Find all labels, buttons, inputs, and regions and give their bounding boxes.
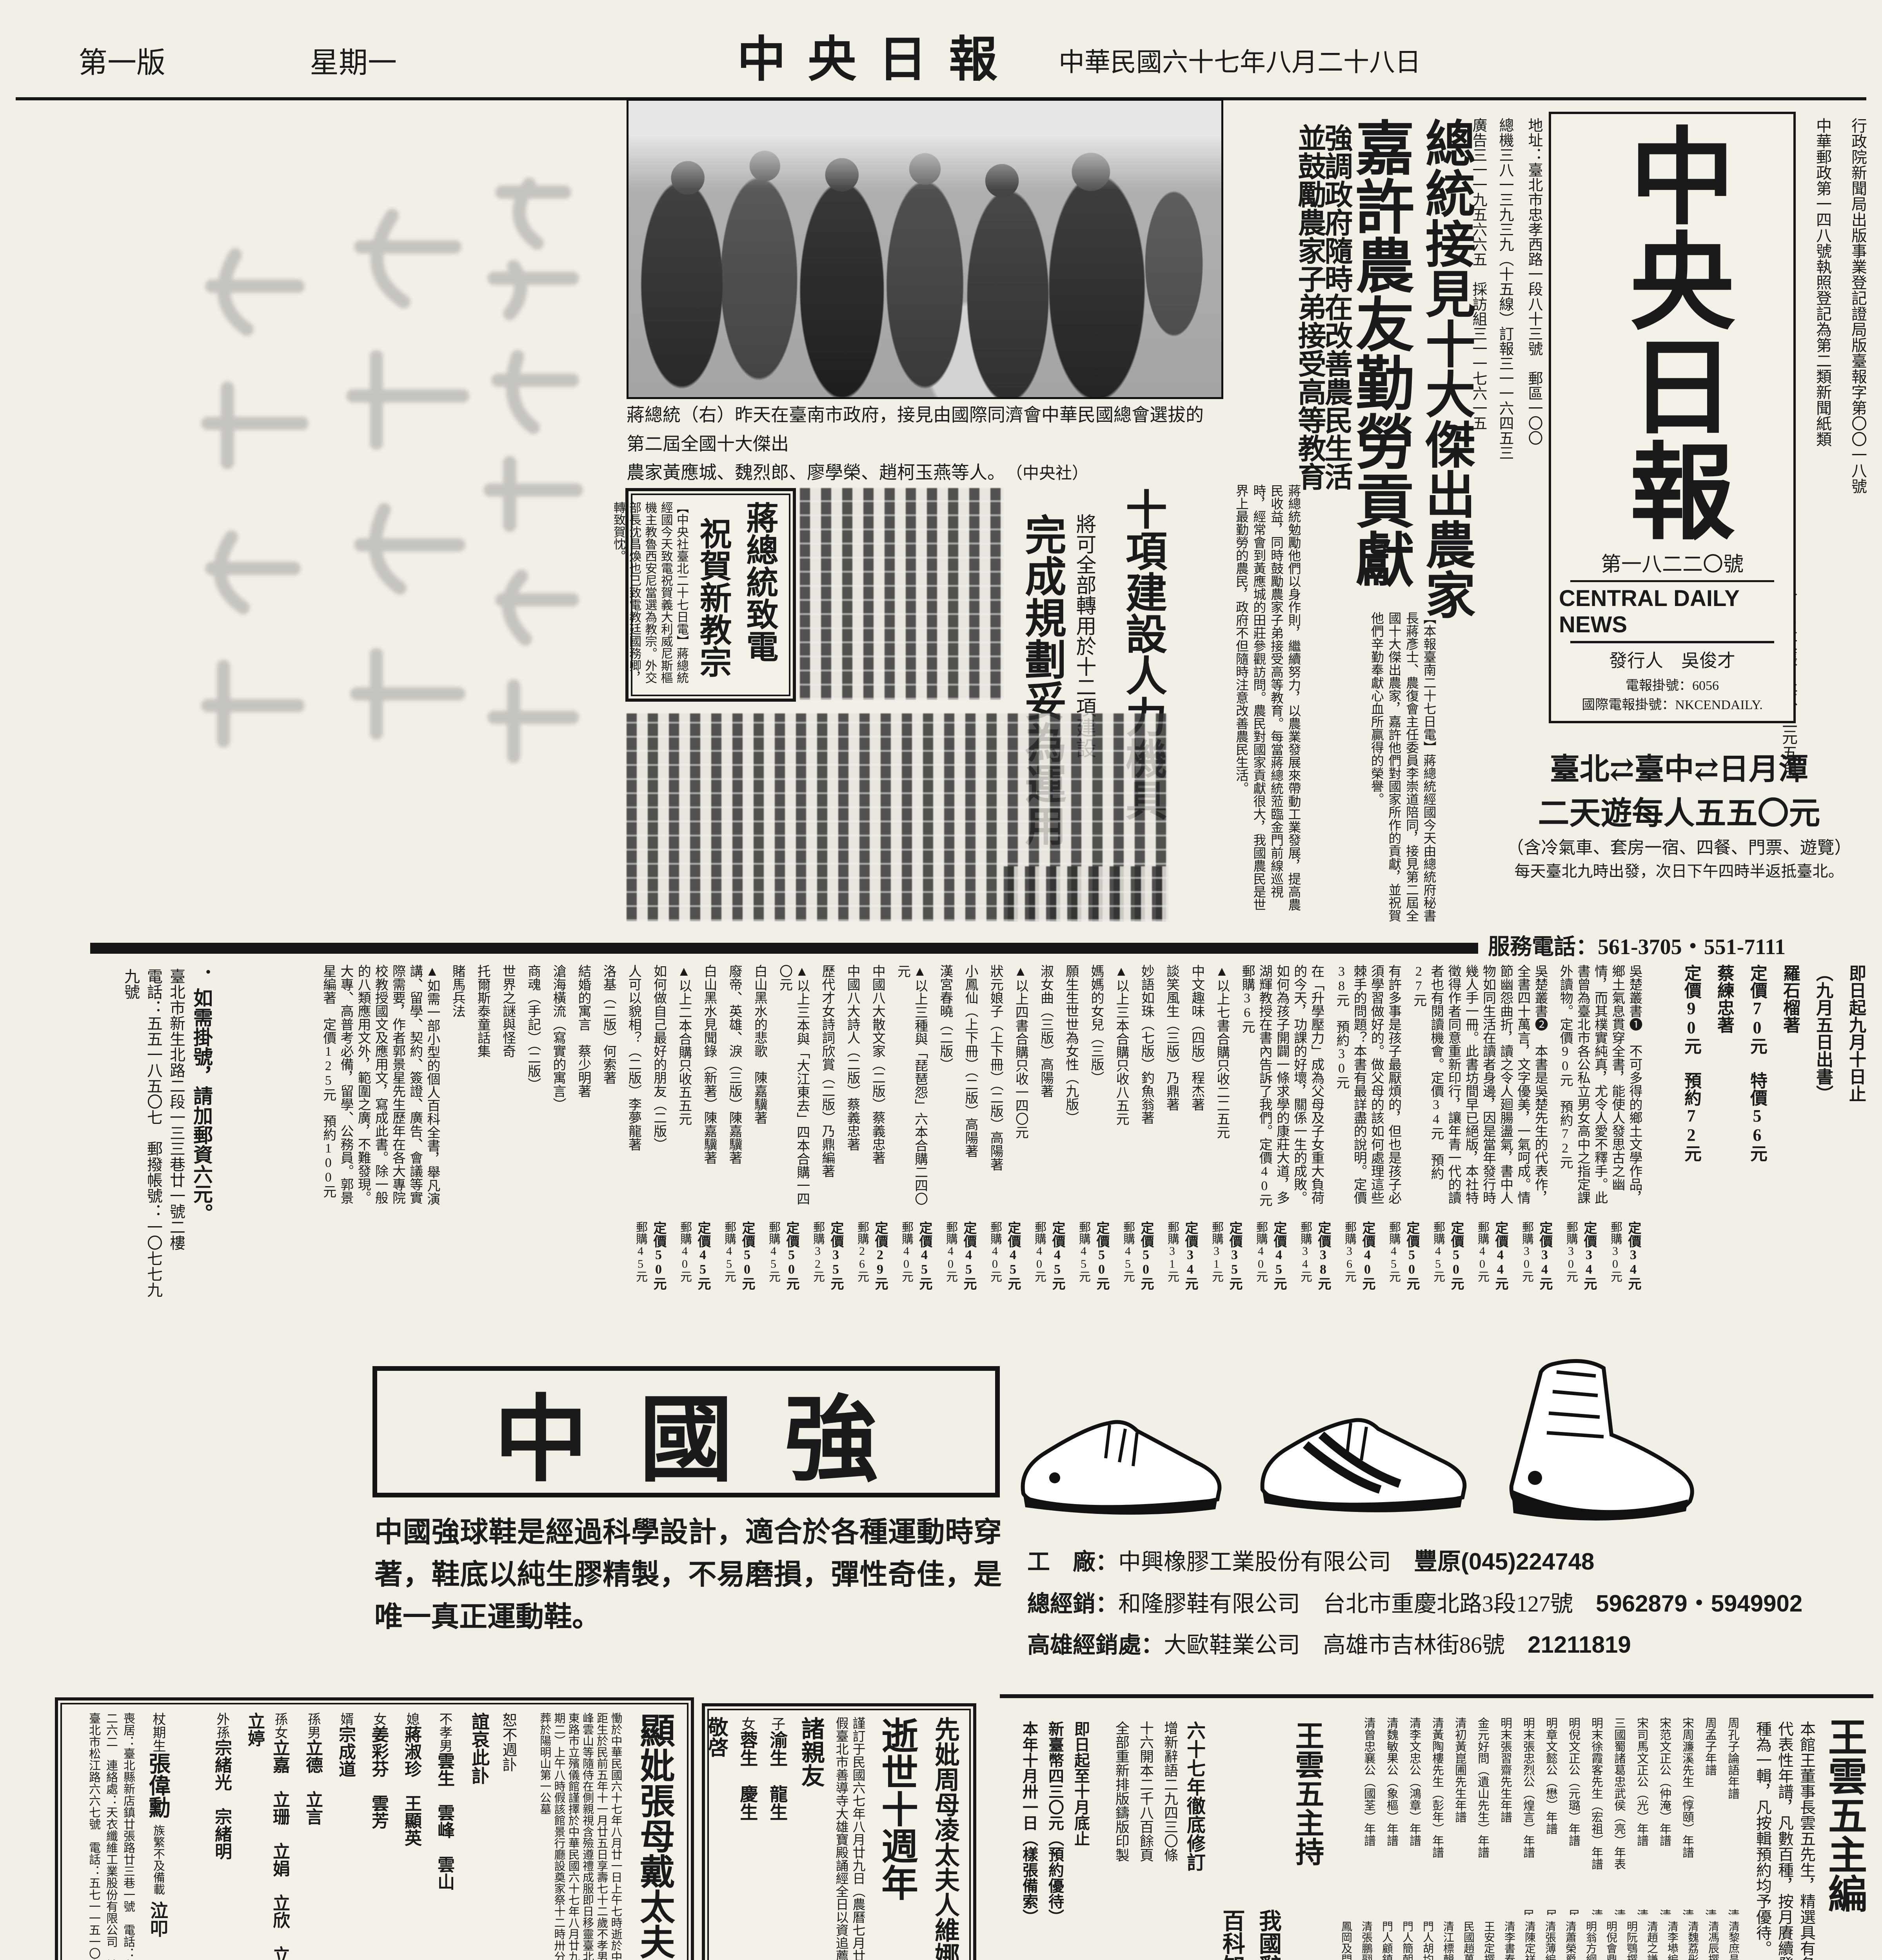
book-ad-promo-columns: 即日起九月十日止（九月五日出書）羅石榴著定價70元 特價56元蔡練忠著定價90元… — [1659, 964, 1872, 1305]
factory-phone: 豐原(045)224748 — [1414, 1548, 1594, 1575]
mail-price: 郵購31元 — [1163, 1221, 1181, 1299]
section-separator-bar — [90, 943, 1478, 954]
memorial-zhou-anniversary: 逝世十週年 — [870, 1717, 923, 1960]
dictionary-price-line: 即日起至十月底止 — [1069, 1721, 1092, 1960]
mail-price: 郵購31元 — [1208, 1221, 1225, 1299]
list-price: 定價45元 — [959, 1221, 978, 1299]
list-price: 定價34元 — [1535, 1221, 1554, 1299]
distributor-name: 和隆膠鞋有限公司 — [1118, 1591, 1300, 1617]
list-price: 定價50元 — [738, 1221, 757, 1299]
pope-box-title-2: 祝賀新教宗 — [689, 517, 736, 697]
kaohsiung-label: 高雄經銷處： — [1027, 1632, 1164, 1658]
obituary-zhang-details: 慟於中華民國六十七年八月廿一日上午七時逝於中心診所距生於民前五年十一月廿五日享壽… — [525, 1712, 623, 1960]
book-ad-column-text: 吳楚叢書❷ 本書是吳楚先生的代表作，全書四十萬言，文字優美，一氣呵成。情節幽怨曲… — [1411, 964, 1547, 1204]
book-ad-column: ▲以上三種與「琵琶怨」六本合購二四〇元 — [894, 964, 928, 1207]
family-group: 婿宗成道 — [333, 1712, 358, 1960]
book-ad-column-text: 賭馬兵法 — [450, 964, 465, 1018]
band-rule — [1000, 1694, 1873, 1698]
yearbook-title: 清黃陶樓先生（彭年）年譜 — [1428, 1717, 1445, 1909]
yearbook-title-columns: 周孔子論語年譜周孟子年譜宋周濂溪先生（惇頤）年譜宋范文正公（仲淹）年譜宋司馬文正… — [1333, 1717, 1741, 1915]
list-price: 定價50元 — [649, 1221, 668, 1299]
shoe-ad-body: 中國強球鞋是經過科學設計，適合於各種運動時穿著，鞋底以純生膠精製，不易磨損，彈性… — [374, 1511, 1002, 1695]
book-ad-column: 如何做自己最好的朋友（二版） — [650, 964, 667, 1207]
book-ad-column-text: 中國八大詩人（二版）蔡義忠著 — [845, 964, 859, 1151]
yearbook-title: 周孟子年譜 — [1701, 1717, 1718, 1909]
book-ad-column: ▲以上二本合購只收五五元 — [675, 964, 692, 1207]
paper-name-header: 中央日報 — [737, 20, 1035, 86]
memorial-zhou-body: 謹訂于民國六七年八月廿九日（農曆七月廿六日）假臺北市善導寺大雄寶殿誦經全日以資追… — [832, 1717, 866, 1960]
tour-schedule: 每天臺北九時出發，次日下午四時半返抵臺北。 — [1488, 858, 1870, 881]
photo-credit: （中央社） — [1014, 465, 1088, 483]
mourning-word: 泣叩 — [148, 1901, 168, 1937]
distributor-address: 台北市重慶北路3段127號 — [1323, 1591, 1573, 1617]
mail-price: 郵購40元 — [1252, 1221, 1269, 1299]
price-pair: 定價50元 郵購45元 — [1075, 1221, 1111, 1299]
yearbook-compiler: 清江標輯 — [1440, 1921, 1455, 1960]
yearbook-compiler: 王安定撰 — [1481, 1921, 1496, 1960]
dictionary-revision-note: 六十七年徹底修訂 — [1180, 1721, 1208, 1960]
lead-deck-1: 強調政府隨時在改善農民生活 — [1331, 123, 1357, 594]
body-text-columns — [800, 488, 1004, 700]
yearbook-compiler: 清張鵬翮輯 — [1358, 1921, 1374, 1960]
book-ad-column-text: 世界之謎與怪奇 — [500, 964, 515, 1058]
mail-price: 郵購45元 — [1075, 1221, 1092, 1299]
book-ad-column: 媽媽的女兒（三版） — [1087, 964, 1104, 1207]
weekday: 星期一 — [310, 39, 420, 82]
mail-price: 郵購26元 — [853, 1221, 870, 1299]
kaohsiung-address: 高雄市吉林街86號 — [1323, 1632, 1505, 1658]
kaohsiung-name: 大歐鞋業公司 — [1164, 1632, 1300, 1658]
book-ad-column: 結婚的寓言 蔡少明著 — [574, 964, 592, 1207]
family-names: 立德 立言 — [303, 1739, 322, 1825]
lead-dateline: 【本報臺南二十七日電】 — [1421, 612, 1435, 754]
book-ad-column-text: 中文趣味（四版）程杰著 — [1190, 964, 1204, 1111]
book-ad-column: 談笑風生（三版）乃鼎著 — [1163, 964, 1180, 1207]
yearbook-title: 民國梁燕孫先生（士詒）年譜 — [1519, 1909, 1536, 1915]
family-note: 族繁不及備載 — [151, 1824, 164, 1895]
book-ad-column: 賭馬兵法 — [449, 964, 466, 1207]
book-ad-column: 中文趣味（四版）程杰著 — [1188, 964, 1205, 1207]
book-ad-column: 歷代才女詩詞欣賞（二版）乃鼎編著 — [818, 964, 836, 1207]
mail-price: 郵購34元 — [1296, 1221, 1313, 1299]
pope-box-title-1: 蔣總統致電 — [736, 501, 783, 682]
price-pair: 定價45元 郵購40元 — [897, 1221, 934, 1299]
price-pair: 定價50元 郵購45元 — [1385, 1221, 1421, 1299]
distributor-phone: 5962879・5949902 — [1596, 1590, 1802, 1617]
obituary-zhang-family: 不孝男雲生 雲峰 雲山 媳蔣淑珍 王顯英 女姜彩芬 雲芳 婿宗成道 孫男立德 立… — [179, 1712, 461, 1960]
lead-headline-second: 嘉許農友勤勞貢獻 — [1357, 118, 1422, 682]
book-ad-price-row: 定價34元 郵購30元 定價34元 郵購30元 定價34元 郵購30元 定價44… — [220, 1221, 1647, 1305]
book-ad-column: 漢宮春曉（二版） — [936, 964, 954, 1207]
list-price: 定價38元 — [1313, 1221, 1333, 1299]
family-group: 孫男立德 立言 — [300, 1712, 325, 1960]
book-ad-contact: ．如需掛號，請加郵資六元。 臺北市新生北路二段一三三巷廿一號二樓 電話：五五一八… — [94, 968, 216, 1305]
pope-box-body: 【中央社臺北二十七日電】蔣總統經國今天致電祝賀義大利威尼斯樞機主教魯西安尼當選為… — [610, 501, 689, 690]
price-pair: 定價45元 郵購40元 — [942, 1221, 978, 1299]
yearbook-compiler: 清李書春著 — [1501, 1921, 1517, 1960]
book-ad-column-text: 漢宮春曉（二版） — [938, 964, 952, 1071]
sneaker-illustration-striped — [1251, 1388, 1470, 1525]
book-ad-column-text: 淑女曲（三版）高陽著 — [1039, 964, 1053, 1098]
dictionary-slogan-2: 百科知識之泉源 — [1213, 1909, 1248, 1960]
book-ad-column: 中國八大詩人（二版）蔡義忠著 — [843, 964, 861, 1207]
yearbook-compiler: 清馮辰撰 — [1705, 1921, 1720, 1960]
dictionary-ad: 六十七年徹底修訂 增新辭語二九四三〇條十六開本二千八百餘頁全部重新排版鑄版印製仍… — [1098, 1721, 1208, 1960]
service-phone: 服務電話：561-3705・551-7111 — [1488, 929, 1870, 964]
yearbook-compiler: 明翁方綱編 — [1582, 1921, 1598, 1960]
publisher: 發行人 吳俊才 — [1609, 646, 1735, 672]
yearbook-title: 清曾忠襄公（國荃）年譜 — [1360, 1717, 1377, 1909]
family-role: 不孝男 — [437, 1712, 452, 1752]
promo-line: （九月五日出書） — [1810, 964, 1835, 1298]
dictionary-price-line: 本年十月卅一日（樣張備索） — [1017, 1721, 1040, 1960]
mail-price: 郵購30元 — [1518, 1221, 1535, 1299]
dictionary-price-lines: 即日起至十月底止新臺幣四三〇元（預約優待）本年十月卅一日（樣張備索）臺北市重慶南… — [1004, 1721, 1092, 1960]
yearbook-compiler: 鳳岡及門弟子謹編 — [1338, 1921, 1353, 1960]
list-price: 定價34元 — [1579, 1221, 1599, 1299]
list-price: 定價50元 — [1092, 1221, 1111, 1299]
obituary-zhang-box: 顯妣張母戴太夫人 慟於中華民國六十七年八月廿一日上午七時逝於中心診所距生於民前五… — [55, 1697, 694, 1960]
yearbook-title: 明倪文正公（元璐）年譜 — [1564, 1717, 1582, 1909]
yearbook-title: 清李恕谷先生年譜 — [1610, 1909, 1627, 1915]
family-names: 蔣淑珍 王顯英 — [402, 1726, 421, 1846]
book-ad-column-text: ▲如需一部小型的個人百科全書，舉凡演講、留學、契約、簽證、廣告、會議等實際需要，… — [321, 964, 440, 1205]
book-ad-column-text: 結婚的寓言 蔡少明著 — [576, 964, 590, 1098]
intl-cable: 國際電報掛號：NKCENDAILY. — [1582, 694, 1763, 713]
paper-title-vertical: 中央日報 — [1617, 122, 1727, 544]
family-group: 女姜彩芬 雲芳 — [366, 1712, 391, 1960]
memorial-zhou-box: 先妣周母凌太夫人維娜 逝世十週年 謹訂于民國六七年八月廿九日（農曆七月廿六日）假… — [702, 1703, 976, 1960]
mail-price: 郵購45元 — [1119, 1221, 1136, 1299]
memorial-zhou-title: 先妣周母凌太夫人維娜 — [927, 1717, 963, 1960]
price-pair: 定價34元 郵購30元 — [1562, 1221, 1599, 1299]
book-ad-column-text: 願生生世世為女性（九版） — [1064, 964, 1078, 1124]
list-price: 定價35元 — [826, 1221, 845, 1299]
shoe-brand-name: 中國強 — [443, 1364, 929, 1500]
memorial-zhou-daughters: 女蓉生 慶生 — [734, 1717, 760, 1960]
dictionary-detail-line: 增新辭語二九四三〇條 — [1160, 1721, 1180, 1960]
yearbook-compiler: 清陳定祥撰 — [1521, 1921, 1537, 1960]
book-ad-column-text: 小鳳仙（上下冊）（二版）高陽著 — [963, 964, 977, 1158]
yearbook-title: 明章文懿公（懋）年譜 — [1542, 1717, 1559, 1909]
list-price: 定價50元 — [1446, 1221, 1466, 1299]
book-ad-column: 淑女曲（三版）高陽著 — [1037, 964, 1054, 1207]
mail-price: 郵購30元 — [1562, 1221, 1579, 1299]
book-ad-column: 白山黑水見聞錄（新著）陳嘉驥著 — [700, 964, 718, 1207]
list-price: 定價45元 — [1048, 1221, 1067, 1299]
yearbook-title: 明末張忠烈公（煌言）年譜 — [1519, 1717, 1536, 1909]
yearbook-title: 明末徐霞客先生（宏祖）年譜 — [1587, 1717, 1604, 1909]
book-ad-column-text: ▲以上三本與「大江東去」四本合購一四〇元 — [778, 964, 809, 1205]
promo-line: 蔡練忠著 — [1711, 964, 1737, 1298]
factory-label: 工 廠： — [1027, 1549, 1118, 1575]
price-pair: 定價34元 郵購31元 — [1163, 1221, 1200, 1299]
family-group: 孫女立嘉 立珊 立娟 立欣 立莉 立婷 — [242, 1712, 292, 1960]
yearbook-title: 周孔子論語年譜 — [1724, 1717, 1741, 1909]
book-ad-column-text: ▲以上七書合購只收二二五元 — [1215, 964, 1229, 1139]
book-ad-column: 洛基（二版）何索著 — [599, 964, 617, 1207]
book-ad-column: 白山黑水的悲歌 陳嘉驥著 — [750, 964, 768, 1207]
book-ad-phone-postal: 電話：五五一八五〇七 郵撥帳號：一〇七七九九號 — [119, 968, 165, 1298]
book-ad-column-text: 白山黑水見聞錄（新著）陳嘉驥著 — [702, 964, 716, 1164]
yearbook-compiler: 明阮鶚撰 — [1623, 1921, 1639, 1960]
yearbook-compiler: 清李塨編 — [1664, 1921, 1680, 1960]
book-ad-column-text: 吳楚叢書❶ 不可多得的鄉土文學作品，鄉土氣息貫穿全書，能使人發思古之幽情，而其樸… — [1558, 964, 1642, 1204]
book-ad-column-text: 在「升學壓力」成為父母及子女重大負荷的今天，功課的好壞，關係一生的成敗。如何為孩… — [1240, 964, 1324, 1217]
dictionary-detail-line: 全部重新排版鑄版印製 — [1111, 1721, 1132, 1960]
book-ad-column-text: 如何做自己最好的朋友（二版） — [652, 964, 666, 1151]
list-price: 定價34元 — [1181, 1221, 1200, 1299]
list-price: 定價50元 — [782, 1221, 801, 1299]
price-pair: 定價50元 郵購45元 — [1429, 1221, 1466, 1299]
yearbook-title: 宋司馬文正公（光）年譜 — [1633, 1717, 1650, 1909]
yearbook-title: 金元好問（遺山先生）年譜 — [1473, 1717, 1491, 1909]
book-ad-column: 滄海橫流（寫實的寓言） — [549, 964, 567, 1207]
book-ad-column: ▲以上三本與「大江東去」四本合購一四〇元 — [776, 964, 810, 1207]
yearbook-compiler: 清趙之謙編 — [1644, 1921, 1659, 1960]
promo-line: 定價90元 預約72元 — [1679, 964, 1704, 1298]
family-group: 不孝男雲生 雲峰 雲山 — [432, 1712, 457, 1960]
book-ad-column: 世界之謎與怪奇 — [499, 964, 516, 1207]
book-ad-column-text: ▲以上三本合購只收八五元 — [1114, 964, 1128, 1125]
family-role: 孫男 — [305, 1712, 320, 1739]
memorial-zhou-addressee: 諸親友 — [794, 1717, 828, 1960]
price-pair: 定價38元 郵購34元 — [1296, 1221, 1333, 1299]
book-ad-column-text: 滄海橫流（寫實的寓言） — [551, 964, 565, 1111]
price-pair: 定價45元 郵購40元 — [676, 1221, 712, 1299]
family-names: 立嘉 立珊 立娟 立欣 立莉 立婷 — [245, 1712, 289, 1960]
list-price: 定價44元 — [1491, 1221, 1510, 1299]
photo-caption-line-2: 農家黃應城、魏烈郎、廖學榮、趙柯玉燕等人。 — [627, 463, 996, 483]
yearbook-compiler: 清魏荔彤編 — [1684, 1921, 1700, 1960]
yearbook-title: 清沈文忠公（兆霖）自訂年譜 — [1701, 1909, 1718, 1915]
mail-price: 郵購45元 — [1429, 1221, 1446, 1299]
book-ad-column-text: 歷代才女詩詞欣賞（二版）乃鼎編著 — [820, 964, 834, 1178]
family-names: 宗成道 — [336, 1726, 355, 1777]
divider — [1570, 580, 1774, 583]
price-pair: 定價45元 郵購40元 — [1030, 1221, 1067, 1299]
ink-bleed-through-calligraphy — [118, 137, 604, 906]
mail-price: 郵購40元 — [676, 1221, 693, 1299]
daughters-label: 女 — [739, 1717, 755, 1731]
lead-headline-main: 總統接見十大傑出農家 — [1423, 118, 1482, 678]
yearbook-title: 民國周玉山先生（馥）自訂年譜 — [1564, 1909, 1582, 1915]
book-ad-column-text: 廢帝、英雄、淚（三版）陳嘉驥著 — [727, 964, 741, 1164]
price-pair: 定價50元 郵購45元 — [720, 1221, 757, 1299]
yearbook-title: 清張文襄公（之洞）年譜 — [1655, 1909, 1673, 1915]
mail-price: 郵購36元 — [1341, 1221, 1358, 1299]
book-ad-column: ▲以上三本合購只收八五元 — [1112, 964, 1130, 1207]
yearbook-compiler: 門人胡均重編 — [1419, 1921, 1435, 1960]
cable-number: 電報掛號：6056 — [1626, 675, 1719, 694]
yearbook-compiler: 清張薄編訂 — [1542, 1921, 1557, 1960]
list-price: 定價45元 — [693, 1221, 712, 1299]
book-ad-column-text: ▲以上四書合購只收一四〇元 — [1013, 964, 1028, 1139]
kaohsiung-phone: 21211819 — [1528, 1632, 1631, 1658]
sneaker-illustration-hightop — [1494, 1348, 1698, 1533]
price-pair: 定價34元 郵購30元 — [1606, 1221, 1643, 1299]
contact-office: 連絡處：天衣纖維工業股份有限公司 — [104, 1759, 117, 1947]
wang-ad-host-title: 王雲五主持 — [1287, 1721, 1328, 1893]
book-ad-column-text: 狀元娘子（上下冊）（二版）高陽著 — [988, 964, 1003, 1171]
sons-names: 渝生 龍生 — [767, 1731, 787, 1821]
newspaper-front-page: { "page":{"paper":"中央日報","date":"中華民國六十七… — [0, 0, 1882, 1960]
family-names: 宗緒光 宗緒明 — [212, 1739, 231, 1860]
dictionary-detail-lines: 增新辭語二九四三〇條十六開本二千八百餘頁全部重新排版鑄版印製仍按五年以前售價大康… — [1098, 1721, 1180, 1960]
family-role: 外孫 — [214, 1712, 229, 1739]
book-ad-column: 吳楚叢書❷ 本書是吳楚先生的代表作，全書四十萬言，文字優美，一氣呵成。情節幽怨曲… — [1410, 964, 1549, 1207]
mail-price: 郵購40元 — [986, 1221, 1003, 1299]
list-price: 定價35元 — [1225, 1221, 1244, 1299]
factory-name: 中興橡膠工業股份有限公司 — [1118, 1549, 1391, 1575]
family-role: 婿 — [338, 1712, 353, 1726]
yearbook-compiler-columns: 清黎庶昌編清馮辰撰清魏荔彤編清李塨編清趙之謙編明阮鶚撰明倪會鼎撰明翁方綱編清蕭榮… — [1333, 1921, 1741, 1960]
book-ad-registered-note: ．如需掛號，請加郵資六元。 — [187, 968, 216, 1298]
family-role: 女 — [371, 1712, 386, 1726]
book-ad-column: 吳楚叢書❶ 不可多得的鄉土文學作品，鄉土氣息貫穿全書，能使人發思古之幽情，而其樸… — [1556, 964, 1643, 1207]
book-ad-column: 願生生世世為女性（九版） — [1062, 964, 1079, 1207]
book-ad-column-text: 中國八大散文家（二版）蔡義忠著 — [870, 964, 885, 1164]
book-ad-column: 商魂（手記）（二版） — [524, 964, 541, 1207]
yearbook-title: 清初黃崑圃先生年譜 — [1451, 1717, 1468, 1909]
yearbook-title: 清李文忠公（鴻章）年譜 — [1405, 1717, 1422, 1909]
tour-includes: （含冷氣車、套房一宿、四餐、門票、遊覽） — [1488, 833, 1870, 858]
page-number: 第一版 — [78, 39, 204, 82]
chief-mourner-name: 張偉勳 — [145, 1752, 170, 1818]
english-name: CENTRAL DAILY NEWS — [1559, 585, 1786, 638]
yearbook-title: 清曾文正公（國藩）年譜 — [1633, 1909, 1650, 1915]
book-ad-column: 在「升學壓力」成為父母及子女重大負荷的今天，功課的好壞，關係一生的成敗。如何為孩… — [1238, 964, 1325, 1207]
tour-price: 二天遊每人五五〇元 — [1488, 788, 1870, 833]
yearbook-compiler: 民國趙萬里撰 — [1460, 1921, 1476, 1960]
book-ad-column: 托爾斯泰童話集 — [474, 964, 491, 1207]
yearbook-title: 宋周濂溪先生（惇頤）年譜 — [1678, 1717, 1695, 1909]
list-price: 定價40元 — [1358, 1221, 1377, 1299]
body-text-columns — [1004, 866, 1168, 921]
tour-route: 臺北⇄臺中⇄日月潭 — [1488, 745, 1870, 788]
yearbook-title: 宋范文正公（仲淹）年譜 — [1655, 1717, 1673, 1909]
sun-moon-lake-tour-ad: 臺北⇄臺中⇄日月潭 二天遊每人五五〇元 （含冷氣車、套房一宿、四餐、門票、遊覽）… — [1488, 745, 1870, 917]
wang-ad-intro: 本館王董事長雲五先生，精選具有各方面代表性年譜，凡數百種，按月賡續發行十種為一輯… — [1749, 1721, 1817, 1960]
sneaker-illustration-low — [1008, 1396, 1227, 1525]
mail-price: 郵購45元 — [765, 1221, 782, 1299]
book-ad-column: 人可以貌相？（二版）李夢龍著 — [625, 964, 642, 1207]
office-address: 地址：臺北市忠孝西路一段八十三號 郵區一〇〇 — [1517, 118, 1545, 706]
yearbook-compiler: 清黎庶昌編 — [1725, 1921, 1741, 1960]
obituary-zhang-contacts: 喪居：臺北縣新店鎮廿張路廿三巷一號 電話：九一一二六二 連絡處：天衣纖維工業股份… — [70, 1712, 136, 1960]
photo-caption-line-1: 蔣總統（右）昨天在臺南市政府，接見由國際同濟會中華民國總會選拔的第二屆全國十大傑… — [627, 401, 1219, 458]
news-photo-president-meeting-farmers — [627, 99, 1223, 399]
list-price: 定價45元 — [1003, 1221, 1023, 1299]
list-price: 定價34元 — [1624, 1221, 1643, 1299]
yearbook-title: 三國蜀諸葛忠武侯（亮）年表 — [1610, 1717, 1627, 1909]
yearbook-title: 明末張習齋先生年譜 — [1496, 1717, 1513, 1909]
book-ad-column-text: 托爾斯泰童話集 — [475, 964, 490, 1058]
book-ad-column-text: 談笑風生（三版）乃鼎著 — [1164, 964, 1179, 1111]
shoe-ad-company-info: 工 廠：中興橡膠工業股份有限公司 豐原(045)224748 總經銷：和隆膠鞋有… — [1027, 1543, 1874, 1691]
lead-article-body: 【本報臺南二十七日電】蔣總統經國今天由總統府秘書長蔣彥士、農復會主任委員李崇道陪… — [1308, 612, 1437, 925]
yearbook-compiler: 清蕭榮爵增補 — [1562, 1921, 1578, 1960]
book-ad-column-text: 洛基（二版）何索著 — [601, 964, 616, 1084]
mail-price: 郵購45元 — [1385, 1221, 1402, 1299]
list-price: 定價50元 — [1136, 1221, 1155, 1299]
masthead-box: 中央日報 第一八二二〇號 CENTRAL DAILY NEWS 發行人 吳俊才 … — [1549, 112, 1796, 723]
book-ad-column: ▲以上七書合購只收二二五元 — [1213, 964, 1230, 1207]
lead-deck-2: 並鼓勵農家子弟接受高等教育 — [1305, 123, 1330, 594]
yearbook-title: 清魏敏果公（象樞）年譜 — [1382, 1717, 1400, 1909]
list-price: 定價45元 — [1269, 1221, 1288, 1299]
book-ad-column-text: 有許多事是孩子最厭煩的，但也是孩子必須學習做好的。做父母的該如何處理這些棘手的問… — [1334, 964, 1401, 1204]
price-pair: 定價35元 郵購32元 — [809, 1221, 845, 1299]
family-role: 孫女 — [272, 1712, 287, 1739]
book-ad-column-text: 妙語如珠（七版）釣魚翁著 — [1139, 964, 1154, 1124]
obituary-zhang-title: 顯妣張母戴太夫人 — [628, 1712, 679, 1960]
book-ad-column-text: 人可以貌相？（二版）李夢龍著 — [626, 964, 641, 1151]
obituary-zhang-pardon: 恕不週訃 — [498, 1712, 519, 1960]
dictionary-slogan-1: 我國辭書之權威 — [1250, 1909, 1284, 1960]
family-group: 外孫宗緒光 宗緒明 — [209, 1712, 234, 1960]
book-ad-address: 臺北市新生北路二段一三三巷廿一號二樓 — [165, 968, 187, 1298]
yearbook-compiler: 門人顧鎮編輯 — [1379, 1921, 1394, 1960]
obituary-zhang-chief: 杖期生張偉勳 族繁不及備載 泣叩 — [142, 1712, 174, 1960]
mail-price: 郵購40元 — [942, 1221, 959, 1299]
book-ad-column-text: 白山黑水的悲歌 陳嘉驥著 — [752, 964, 767, 1124]
price-pair: 定價50元 郵購45元 — [632, 1221, 668, 1299]
book-ad-column-text: 媽媽的女兒（三版） — [1089, 964, 1103, 1084]
yearbook-compiler: 明倪會鼎撰 — [1603, 1921, 1619, 1960]
distributor-label: 總經銷： — [1027, 1591, 1118, 1617]
book-ad-column-text: 商魂（手記）（二版） — [526, 964, 540, 1091]
book-ad-column: 廢帝、英雄、淚（三版）陳嘉驥著 — [725, 964, 743, 1207]
shoe-brand-box: 中國強 — [372, 1366, 1000, 1497]
yearbook-title: 民國王靜安先生（國維）年譜 — [1542, 1909, 1559, 1915]
price-pair: 定價50元 郵購45元 — [765, 1221, 801, 1299]
date-line: 中華民國六十七年八月二十八日 — [1059, 41, 1529, 84]
memorial-zhou-sons: 子渝生 龍生 — [764, 1717, 790, 1960]
book-ad-column-text: ▲以上二本合購只收五五元 — [677, 964, 691, 1125]
mail-price: 郵購45元 — [632, 1221, 649, 1299]
chief-mourner-label: 杖期生 — [151, 1712, 165, 1752]
yearbook-title: 清魏貞庵先生年譜 — [1587, 1909, 1604, 1915]
mail-price: 郵購45元 — [720, 1221, 738, 1299]
yearbook-title: 清朱九江先生（次琦）年譜 — [1678, 1909, 1695, 1915]
book-ad-column: 中國八大散文家（二版）蔡義忠著 — [868, 964, 886, 1207]
mail-price: 郵購40元 — [1030, 1221, 1048, 1299]
family-group: 媳蔣淑珍 王顯英 — [399, 1712, 424, 1960]
mail-price: 郵購40元 — [1473, 1221, 1491, 1299]
wang-ad-editor-title: 王雲五主編 — [1821, 1717, 1872, 1960]
book-ad-column: 妙語如珠（七版）釣魚翁著 — [1137, 964, 1155, 1207]
obituary-zhang-sorrow: 誼哀此訃 — [466, 1712, 492, 1960]
price-pair: 定價45元 郵購40元 — [986, 1221, 1023, 1299]
list-price: 定價29元 — [870, 1221, 890, 1299]
issue-number: 第一八二二〇號 — [1601, 548, 1744, 577]
book-ad-column: 狀元娘子（上下冊）（二版）高陽著 — [986, 964, 1004, 1207]
list-price: 定價45元 — [915, 1221, 934, 1299]
memorial-zhou-closing: 敬啓 — [701, 1717, 730, 1960]
yearbook-title: 清岑襄勤公（毓英）年譜 — [1724, 1909, 1741, 1915]
book-ad-phone: 電話：五五一八五〇七 — [145, 968, 162, 1125]
office-phones: 總機三八一三九三九（十五線）訂報三一一六四五三 — [1490, 118, 1516, 706]
sons-label: 子 — [769, 1717, 785, 1731]
price-pair: 定價44元 郵購40元 — [1473, 1221, 1510, 1299]
price-pair: 定價40元 郵購36元 — [1341, 1221, 1377, 1299]
dictionary-price-line: 新臺幣四三〇元（預約優待） — [1043, 1721, 1066, 1960]
lead-article-continued: 蔣總統勉勵他們以身作則，繼續努力，以農業發展來帶動工業發展，提高農民收益，同時鼓… — [1172, 484, 1302, 919]
book-ad-column: ▲如需一部小型的個人百科全書，舉凡演講、留學、契約、簽證、廣告、會議等實際需要，… — [320, 964, 441, 1207]
contact-phone: 電話：五七一一五一〇六 — [87, 1842, 100, 1960]
family-names: 雲生 雲峰 雲山 — [435, 1752, 454, 1890]
